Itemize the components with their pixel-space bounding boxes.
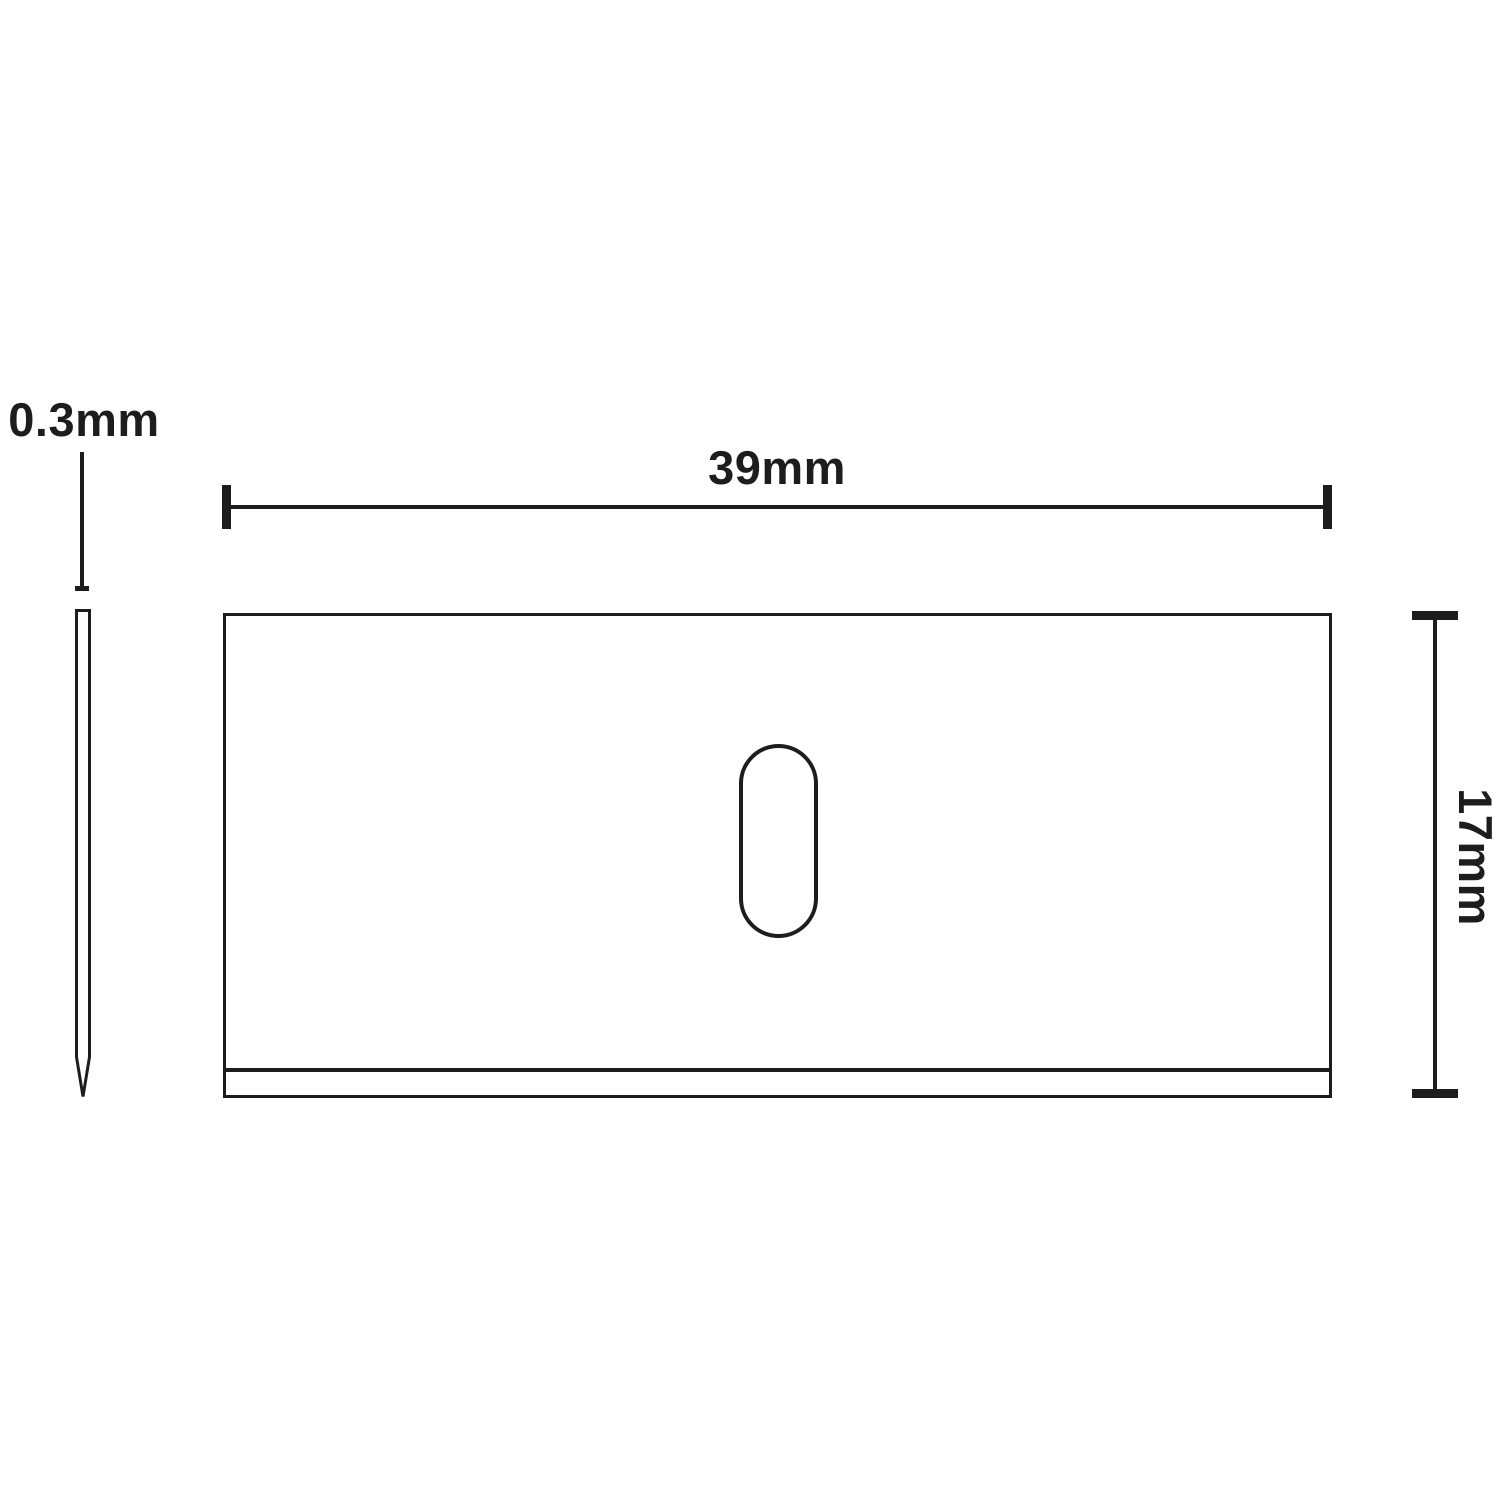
blade-side-profile-path — [77, 611, 90, 1097]
blade-center-slot — [739, 744, 818, 938]
width-dimension-tick-right — [1323, 485, 1332, 529]
blade-side-view-shape — [75, 609, 91, 1099]
height-dimension-label: 17mm — [1450, 757, 1500, 957]
blade-dimension-diagram: 0.3mm 39mm 17mm — [0, 0, 1500, 1500]
blade-cutting-edge-line — [223, 1068, 1332, 1072]
height-dimension-tick-bottom — [1412, 1089, 1458, 1098]
height-dimension-tick-top — [1412, 611, 1458, 620]
thickness-dimension-label: 0.3mm — [6, 396, 162, 443]
thickness-leader-line — [80, 452, 84, 588]
width-dimension-label: 39mm — [627, 444, 927, 491]
width-dimension-tick-left — [222, 485, 231, 529]
width-dimension-line — [226, 505, 1328, 509]
height-dimension-line — [1433, 614, 1437, 1094]
thickness-leader-tick — [75, 586, 89, 591]
